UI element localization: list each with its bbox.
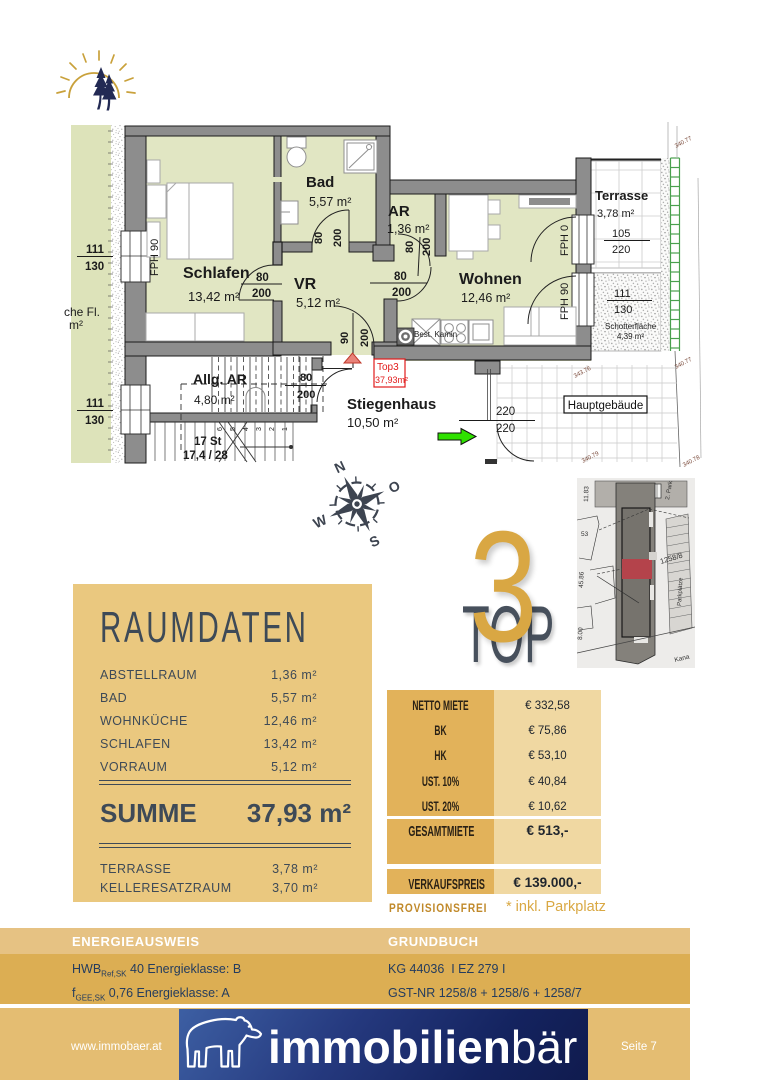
svg-text:4,39 m²: 4,39 m² [617, 332, 644, 341]
svg-text:S: S [367, 532, 382, 550]
svg-text:FPH 90: FPH 90 [559, 283, 571, 320]
svg-text:13,42 m²: 13,42 m² [188, 289, 240, 304]
svg-text:200: 200 [421, 238, 433, 256]
svg-text:200: 200 [332, 229, 344, 247]
svg-text:Schotterfläche: Schotterfläche [605, 322, 657, 331]
svg-text:4: 4 [243, 427, 250, 431]
svg-text:200: 200 [392, 287, 411, 299]
svg-text:5: 5 [230, 427, 237, 431]
svg-text:340.78: 340.78 [682, 455, 702, 469]
svg-text:2: 2 [269, 427, 276, 431]
svg-text:111: 111 [614, 288, 631, 300]
svg-text:1: 1 [282, 427, 289, 431]
svg-text:80: 80 [394, 271, 407, 283]
svg-text:200: 200 [359, 329, 371, 347]
svg-text:AR: AR [388, 203, 410, 220]
svg-text:220: 220 [496, 406, 515, 418]
svg-text:130: 130 [85, 261, 104, 273]
svg-text:37,93m²: 37,93m² [375, 375, 408, 385]
svg-text:10,50 m²: 10,50 m² [347, 415, 399, 430]
svg-text:111: 111 [86, 398, 105, 410]
svg-text:Hauptgebäude: Hauptgebäude [568, 400, 643, 412]
svg-text:4,80 m²: 4,80 m² [194, 393, 235, 407]
svg-text:200: 200 [252, 288, 271, 300]
svg-text:17 St: 17 St [194, 436, 222, 448]
svg-text:105: 105 [612, 228, 630, 240]
svg-text:W: W [310, 511, 329, 531]
svg-text:340.77: 340.77 [674, 357, 694, 371]
svg-text:Terrasse: Terrasse [595, 188, 648, 203]
svg-text:Top3: Top3 [377, 362, 399, 373]
svg-text:che Fl.: che Fl. [64, 305, 100, 319]
svg-text:O: O [386, 477, 403, 496]
svg-text:Allg. AR: Allg. AR [193, 371, 247, 387]
svg-text:130: 130 [614, 304, 632, 316]
svg-text:3: 3 [256, 427, 263, 431]
svg-text:5,57 m²: 5,57 m² [309, 195, 351, 209]
svg-text:17,4 / 28: 17,4 / 28 [183, 450, 228, 462]
svg-text:80: 80 [404, 241, 416, 253]
svg-text:Stiegenhaus: Stiegenhaus [347, 396, 436, 413]
svg-text:6: 6 [217, 427, 224, 431]
svg-text:220: 220 [496, 423, 515, 435]
svg-text:111: 111 [86, 244, 105, 256]
svg-text:1,36 m²: 1,36 m² [387, 222, 429, 236]
svg-text:90: 90 [339, 332, 351, 344]
svg-text:12,46 m²: 12,46 m² [461, 291, 510, 305]
svg-text:Best. Kamin: Best. Kamin [414, 330, 457, 339]
svg-text:Wohnen: Wohnen [459, 271, 522, 288]
svg-text:Bad: Bad [306, 174, 334, 191]
svg-text:3,78 m²: 3,78 m² [597, 208, 635, 220]
svg-text:FPH 90: FPH 90 [149, 239, 161, 276]
svg-text:130: 130 [85, 415, 104, 427]
svg-text:80: 80 [256, 272, 269, 284]
svg-text:m²: m² [69, 318, 83, 332]
svg-text:5,12 m²: 5,12 m² [296, 295, 341, 310]
svg-text:FPH 0: FPH 0 [559, 225, 571, 256]
svg-text:80: 80 [313, 232, 325, 244]
svg-text:N: N [332, 457, 348, 476]
svg-text:Schlafen: Schlafen [183, 265, 250, 282]
svg-text:220: 220 [612, 244, 630, 256]
svg-text:VR: VR [294, 276, 317, 293]
